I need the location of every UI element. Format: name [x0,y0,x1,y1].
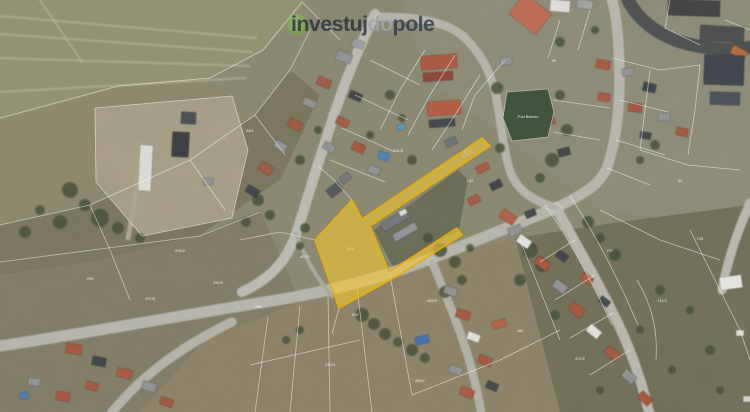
parcel-number-label: 737 [607,248,614,253]
satellite-map[interactable]: Pod Březím 294/2292/5290407/1409449/3466… [0,0,750,412]
parcel-number-label: 412/3 [325,362,336,367]
brand-text-part3: pole [393,12,435,36]
parcel-number-label: 407/1 [300,254,311,259]
parcel-number-label: 741/2 [657,298,668,303]
parcel-number-label: 95 [552,58,557,63]
parcel-number-label: 455/1 [415,378,426,383]
parcel-number-label: 294/2 [175,248,186,253]
brand-watermark: investujdopole [291,10,434,40]
parcel-number-label: 88/1 [246,128,255,133]
parcel-number-label: 292/5 [213,280,224,285]
parcel-number-label: 466 [517,328,524,333]
parcel-number-label: 409 [352,312,359,317]
parcel-number-label: 299 [87,276,94,281]
parcel-number-label: 121/4 [393,148,404,153]
parcel-number-label: 132 [467,178,474,183]
parcel-number-label: 745 [697,236,704,241]
parcel-number-label: 290 [255,304,262,309]
parcel-number-label: 52 [678,178,683,183]
parcel-number-label: 297/8 [145,296,156,301]
parcel-number-label: 472/2 [575,356,586,361]
brand-text-part2: do [367,12,392,36]
parcel-number-label: 449/3 [427,298,438,303]
brand-text-part1: investuj [291,12,367,36]
aerial-map-screenshot: Pod Březím 294/2292/5290407/1409449/3466… [0,0,750,412]
photo-grain-texture [0,0,750,412]
